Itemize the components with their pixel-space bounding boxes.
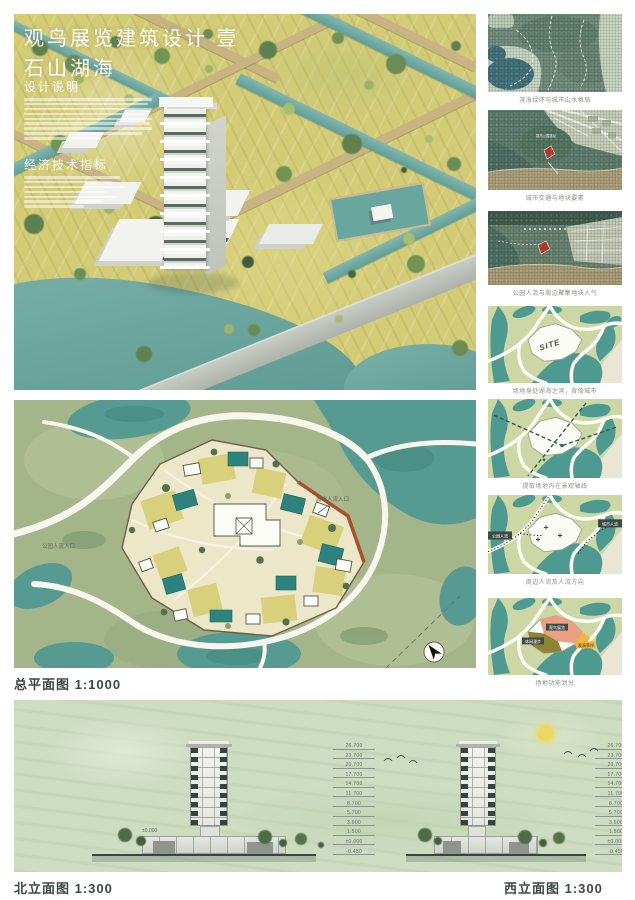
flow-label-city: 城市人流	[602, 520, 618, 526]
tower-base	[468, 826, 486, 836]
level-mark: -0.450	[336, 850, 372, 854]
design-notes-text	[24, 98, 152, 142]
axonometric-render: 观鸟展览建筑设计 壹 石山湖海 设计说明 经济技术指标	[14, 14, 476, 390]
analysis-figure-flows: 公园人流 城市人流 周边人流及人流方向	[488, 495, 622, 574]
birds-icon	[562, 746, 602, 760]
level-mark: 5.700	[336, 811, 372, 815]
level-mark: 3.900	[336, 821, 372, 825]
analysis-caption: 滨海绿环与城市山水格局	[488, 95, 622, 104]
level-mark: 5.700	[598, 811, 622, 815]
level-mark: 11.700	[598, 792, 622, 796]
design-notes-heading: 设计说明	[24, 78, 80, 95]
north-elevation-label: 北立面图 1:300	[14, 878, 113, 897]
level-mark: ±0.000	[336, 840, 372, 844]
podium-elevation	[142, 836, 286, 854]
tower-shadow	[148, 272, 238, 294]
analysis-figure-crowd: 公园人流与周边聚集地块人气	[488, 211, 622, 285]
sun-icon	[538, 726, 553, 741]
analysis-figure-regional: 滨海绿环与城市山水格局	[488, 14, 622, 92]
level-mark: 14.700	[598, 782, 622, 786]
diagram-site-location: SITE	[488, 306, 622, 383]
zone-label-lawn: 观演草坪	[578, 643, 594, 648]
analysis-caption: 场地功能划分	[488, 678, 622, 687]
site-plan: 城市人流入口 公园人流入口	[14, 400, 476, 668]
flow-label-park: 公园人流	[492, 533, 508, 539]
analysis-caption: 公园人流与周边聚集地块人气	[488, 288, 622, 297]
entrance-city-label: 城市人流入口	[316, 495, 349, 503]
birds-icon	[382, 752, 422, 766]
terrace-deck	[259, 224, 323, 244]
level-mark: ±0.000	[598, 840, 622, 844]
tower-base	[200, 826, 220, 836]
elevation-trees	[418, 828, 432, 842]
site-plan-drawing: 城市人流入口 公园人流入口	[14, 400, 476, 668]
level-mark: -0.450	[598, 850, 622, 854]
lake-water	[344, 344, 476, 390]
level-mark: 11.700	[336, 792, 372, 796]
pond-platform	[371, 204, 393, 221]
water-channel	[236, 73, 476, 207]
below-grade	[92, 856, 316, 862]
podium-elevation	[434, 836, 538, 854]
satellite-map-crowd	[488, 211, 622, 285]
tech-index-heading: 经济技术指标	[24, 156, 108, 173]
presentation-board: 观鸟展览建筑设计 壹 石山湖海 设计说明 经济技术指标	[0, 0, 635, 900]
satellite-map-traffic: 观鸟公园选址	[488, 110, 622, 190]
satellite-map-regional	[488, 14, 622, 92]
elevations-panel: ±0.000 26.70023.70020.70017.70014.70011.…	[14, 700, 622, 872]
analysis-figure-traffic: 观鸟公园选址 城市交通与地块要素	[488, 110, 622, 190]
level-mark: 1.500	[598, 830, 622, 834]
level-mark: 20.700	[336, 763, 372, 767]
analysis-caption: 周边人流及人流方向	[488, 577, 622, 586]
level-mark: 14.700	[336, 782, 372, 786]
below-grade	[406, 856, 586, 862]
zone-label-exhibition: 观鸟展览	[549, 625, 565, 630]
analysis-caption: 提取场地内在景观轴线	[488, 481, 622, 490]
tech-index-text	[24, 176, 124, 210]
poster-title: 观鸟展览建筑设计 壹	[24, 22, 240, 51]
diagram-functional-zoning: 观鸟展览 休闲漫步 观演草坪	[488, 598, 622, 675]
level-mark: 26.700	[336, 744, 372, 748]
level-marks-north: 26.70023.70020.70017.70014.70011.7008.70…	[336, 744, 372, 859]
level-mark: 1.500	[336, 830, 372, 834]
site-marker-label: 观鸟公园选址	[536, 133, 557, 138]
elevation-trees	[118, 828, 132, 842]
west-elevation-label: 西立面图 1:300	[504, 878, 603, 897]
level-mark: 23.700	[336, 754, 372, 758]
diagram-pedestrian-flows: 公园人流 城市人流	[488, 495, 622, 574]
tower-elevation-north	[190, 746, 228, 826]
analysis-figure-zoning: 观鸟展览 休闲漫步 观演草坪 场地功能划分	[488, 598, 622, 675]
level-mark: 17.700	[598, 773, 622, 777]
level-mark: 8.700	[336, 802, 372, 806]
analysis-figure-site: SITE 场地身处湖海之滨，背倚城市	[488, 306, 622, 383]
datum-label: ±0.000	[142, 828, 157, 834]
level-mark: 3.900	[598, 821, 622, 825]
poster-subtitle: 石山湖海	[24, 52, 116, 81]
entrance-park-label: 公园人流入口	[42, 542, 75, 550]
diagram-landscape-axes	[488, 399, 622, 478]
tower-roof	[159, 97, 213, 107]
analysis-figure-axes: 提取场地内在景观轴线	[488, 399, 622, 478]
level-mark: 17.700	[336, 773, 372, 777]
tower-elevation-west	[460, 746, 496, 826]
bird-watching-tower	[162, 102, 240, 302]
tower-floor-slabs	[160, 104, 210, 270]
site-plan-label: 总平面图 1:1000	[14, 674, 121, 693]
zone-label-leisure: 休闲漫步	[525, 639, 541, 644]
north-arrow-icon	[424, 642, 444, 662]
level-mark: 8.700	[598, 802, 622, 806]
analysis-caption: 场地身处湖海之滨，背倚城市	[488, 386, 622, 395]
level-mark: 20.700	[598, 763, 622, 767]
level-marks-west: 26.70023.70020.70017.70014.70011.7008.70…	[598, 744, 622, 859]
analysis-caption: 城市交通与地块要素	[488, 193, 622, 202]
analysis-column: 滨海绿环与城市山水格局 观鸟公园选址	[488, 14, 622, 686]
